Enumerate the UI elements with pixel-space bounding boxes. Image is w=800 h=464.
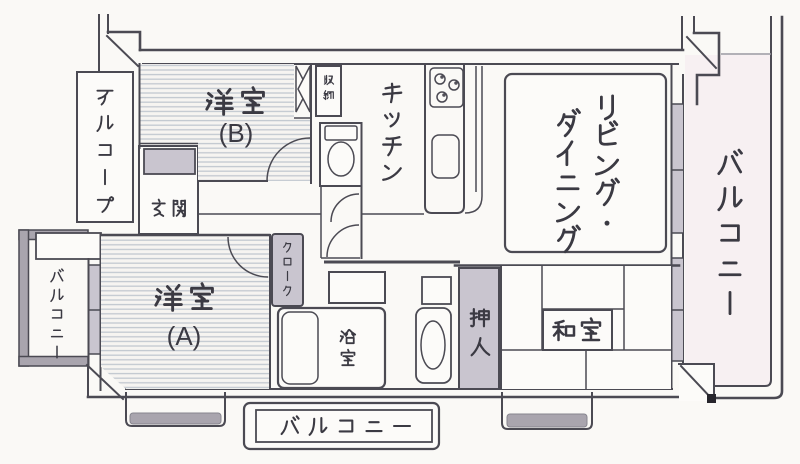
svg-text:(A): (A) — [167, 321, 202, 351]
svg-text:(B): (B) — [219, 118, 254, 148]
